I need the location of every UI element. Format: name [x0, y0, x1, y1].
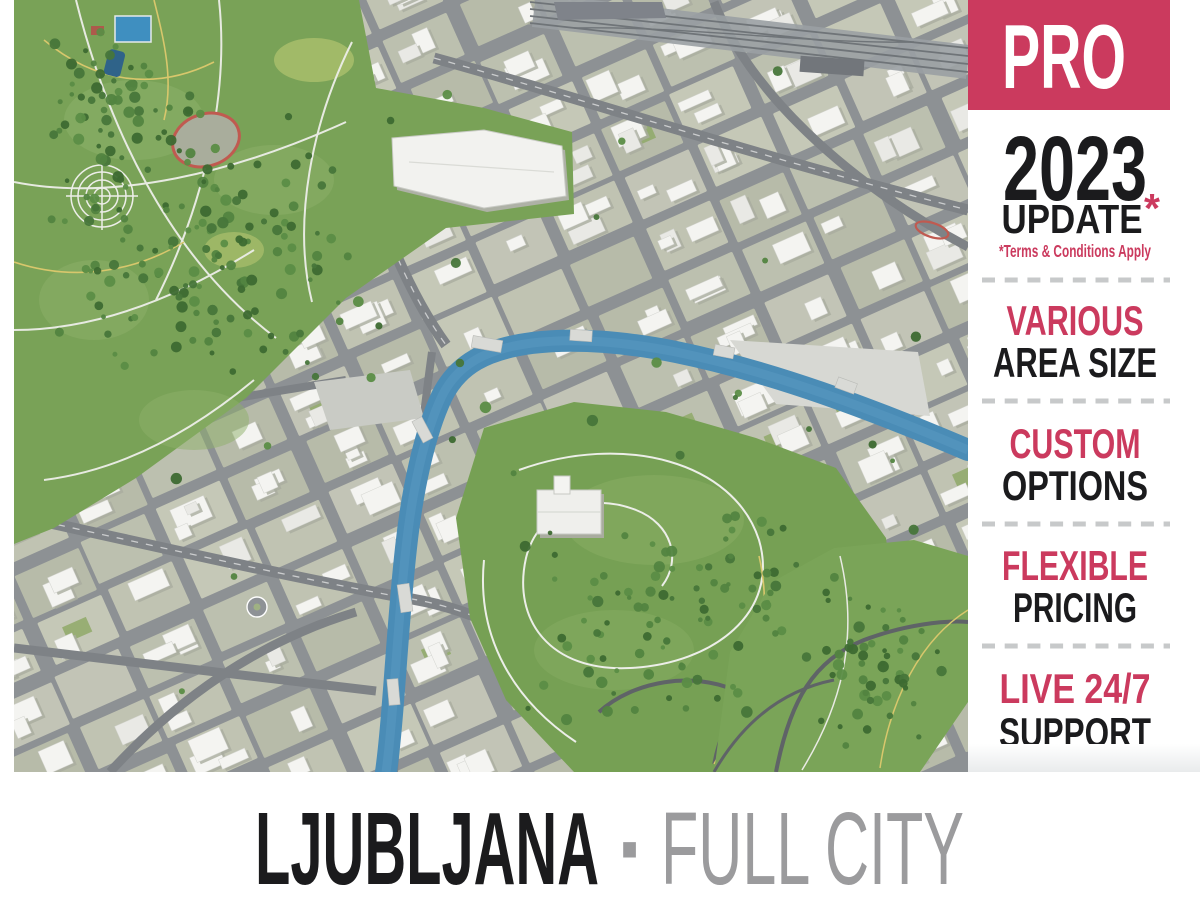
feature-3-line-2: PRICING — [1013, 584, 1137, 631]
update-asterisk: * — [1144, 185, 1160, 231]
title-canvas: LJUBLJANA · FULL CITY — [0, 772, 1200, 915]
scope-title: FULL CITY — [661, 791, 964, 906]
title-bar: LJUBLJANA · FULL CITY — [0, 772, 1200, 915]
castle-tower — [554, 476, 570, 494]
feature-1-line-2: AREA SIZE — [993, 339, 1157, 386]
product-poster: PRO 2023 UPDATE * *Terms & Conditions Ap… — [0, 0, 1200, 915]
pro-badge-label: PRO — [1002, 7, 1126, 108]
feature-3-line-1: FLEXIBLE — [1002, 542, 1148, 589]
city-title: LJUBLJANA — [255, 791, 599, 906]
terms-note: *Terms & Conditions Apply — [999, 241, 1151, 261]
feature-4-line-1: LIVE 24/7 — [1000, 665, 1151, 712]
title-separator-dot: · — [617, 791, 647, 906]
feature-sidebar: PRO 2023 UPDATE * *Terms & Conditions Ap… — [968, 0, 1200, 772]
feature-2-line-2: OPTIONS — [1002, 462, 1148, 509]
feature-2-line-1: CUSTOM — [1010, 420, 1141, 467]
update-label: UPDATE — [1002, 196, 1143, 242]
sidebar-bottom-fade — [968, 744, 1200, 772]
city-map-render — [14, 0, 968, 772]
sidebar-canvas: PRO 2023 UPDATE * *Terms & Conditions Ap… — [968, 0, 1200, 772]
swimming-pool — [115, 16, 151, 42]
feature-1-line-1: VARIOUS — [1007, 297, 1144, 344]
map-canvas — [14, 0, 968, 772]
